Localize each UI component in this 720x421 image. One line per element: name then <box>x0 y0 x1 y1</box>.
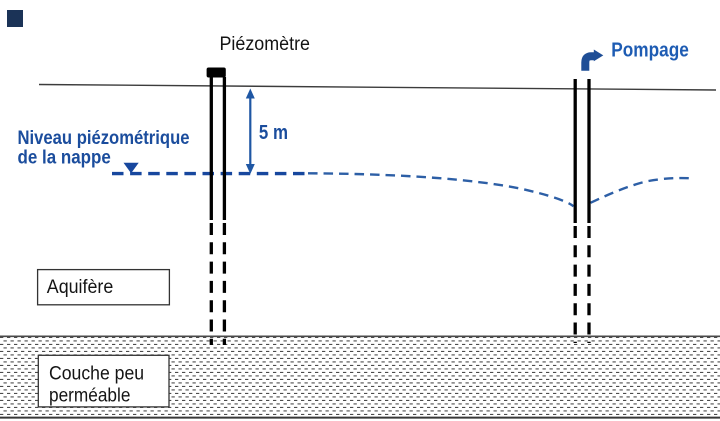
svg-text:5 m: 5 m <box>259 122 288 144</box>
svg-text:Pompage: Pompage <box>611 40 689 62</box>
svg-text:de la nappe: de la nappe <box>18 147 111 169</box>
svg-text:Piézomètre: Piézomètre <box>220 34 311 55</box>
svg-text:perméable: perméable <box>49 385 130 406</box>
svg-text:Couche peu: Couche peu <box>49 364 144 385</box>
svg-text:Aquifère: Aquifère <box>47 277 114 298</box>
